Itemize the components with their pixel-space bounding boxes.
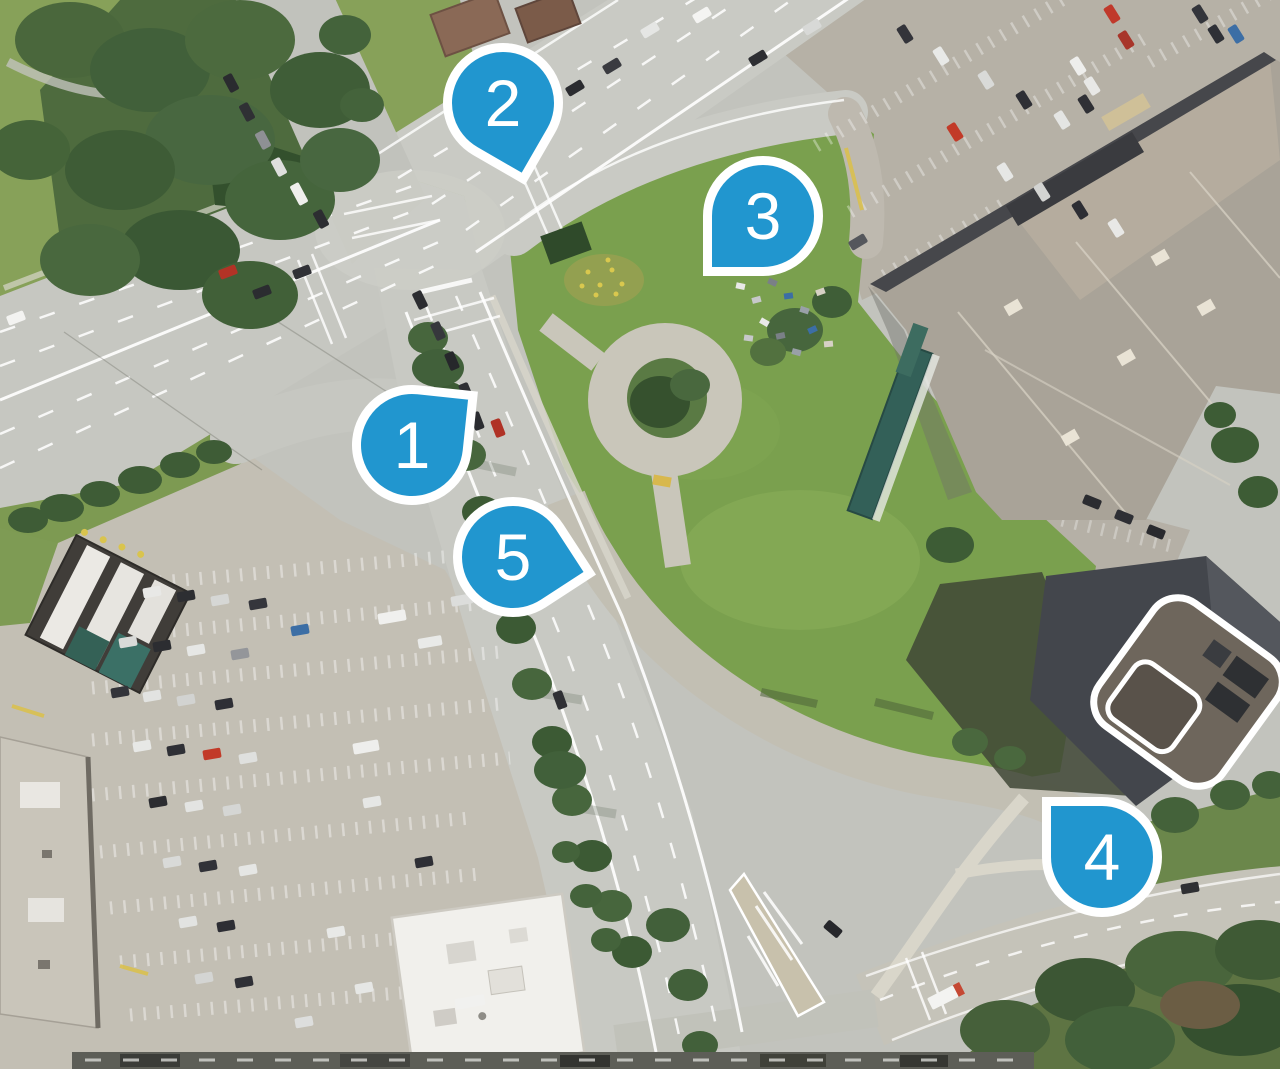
map-pin-4[interactable]: 4: [1042, 797, 1162, 917]
map-pin-label: 3: [703, 156, 823, 276]
map-pin-2[interactable]: 2: [443, 43, 563, 163]
map-pin-label: 4: [1042, 797, 1162, 917]
aerial-map: 1 2 3 4 5: [0, 0, 1280, 1069]
white-building: [392, 894, 585, 1069]
map-pin-3[interactable]: 3: [703, 156, 823, 276]
map-pin-5[interactable]: 5: [453, 497, 573, 617]
map-pin-1[interactable]: 1: [352, 385, 472, 505]
map-pin-label: 5: [453, 497, 573, 617]
bottom-edge-strip: [72, 1052, 1034, 1069]
strip-building: [0, 737, 98, 1028]
map-pin-label: 2: [443, 43, 563, 163]
map-pin-label: 1: [352, 385, 472, 505]
